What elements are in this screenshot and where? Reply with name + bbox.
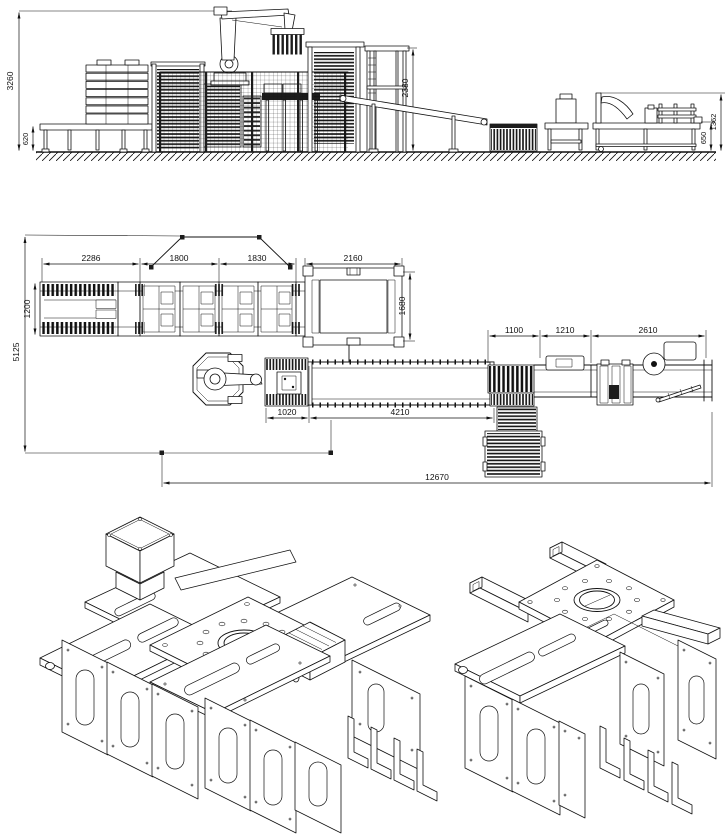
dim-650-value: 650	[699, 132, 708, 145]
outfeed-line-plan	[534, 342, 712, 405]
technical-drawing-page: 3260 620	[0, 0, 728, 837]
dim-2610-value: 2610	[639, 325, 658, 335]
pallet-bay	[183, 286, 215, 332]
infeed-conveyor-plan	[308, 362, 494, 405]
dim-620-value: 620	[21, 133, 30, 146]
dim-2380-value: 2380	[400, 78, 410, 97]
dim-1680-value: 1680	[397, 296, 407, 315]
pallet-bay	[143, 286, 175, 332]
control-box-plan	[664, 342, 696, 360]
robot-plan	[193, 353, 262, 405]
pallet-bay	[261, 286, 292, 332]
infeed-roller-conveyor	[40, 124, 152, 152]
robot-mast	[220, 18, 236, 60]
dim-1200-value: 1200	[22, 299, 32, 318]
right-side-plates-2	[620, 640, 716, 766]
dim-1020-value: 1020	[278, 407, 297, 417]
gripper-plan	[265, 358, 308, 406]
layer-sheet-rack	[306, 42, 364, 152]
diverter-arm	[656, 385, 701, 402]
dim-5125-value: 5125	[11, 342, 21, 361]
right-side-plate	[352, 660, 420, 770]
gripper-iso-left	[40, 517, 437, 833]
pallet-stack	[86, 60, 148, 124]
outfeed-station	[593, 93, 702, 152]
lift-station-plan	[303, 266, 404, 362]
dim-1210-value: 1210	[556, 325, 575, 335]
dim-2380: 2380	[400, 48, 417, 151]
pallet-bay	[222, 286, 254, 332]
caster-2	[459, 667, 468, 674]
dim-4210-value: 4210	[391, 407, 410, 417]
clamp-plates-center	[205, 698, 341, 833]
dim-12670-value: 12670	[425, 472, 449, 482]
palletizing-line-drawing: 3260 620	[0, 0, 728, 837]
elevation-view: 3260 620	[5, 7, 725, 161]
dim-2160-value: 2160	[344, 253, 363, 263]
ground-line	[36, 152, 716, 161]
dim-1830-value: 1830	[248, 253, 267, 263]
wrap-dispenser	[601, 96, 633, 119]
roller-table	[490, 124, 537, 151]
dim-3260-value: 3260	[5, 71, 15, 90]
dim-1200: 1200	[22, 284, 35, 335]
dim-12670: 12670	[25, 412, 712, 487]
dim-2286-value: 2286	[82, 253, 101, 263]
robot-gripper-elevation	[271, 29, 304, 55]
declining-belt	[340, 95, 487, 152]
wrapper-machine-plan	[597, 360, 633, 405]
plan-view: 2286 1800 1830 2160 5125 1200	[11, 235, 712, 487]
down-roller-conveyor	[483, 407, 545, 477]
cross-beam-right	[642, 610, 720, 644]
gripper-iso-right	[455, 542, 720, 818]
dim-1800-value: 1800	[170, 253, 189, 263]
junction-box	[106, 517, 174, 600]
caster	[46, 663, 55, 670]
transfer-rollers	[488, 365, 534, 406]
dim-5125: 5125	[11, 237, 25, 452]
strapping-machine	[545, 94, 588, 150]
dim-1100-value: 1100	[505, 325, 524, 335]
pallet-conveyor-plan	[40, 282, 305, 336]
robot-boom	[221, 9, 289, 19]
dim-620: 620	[21, 127, 33, 151]
